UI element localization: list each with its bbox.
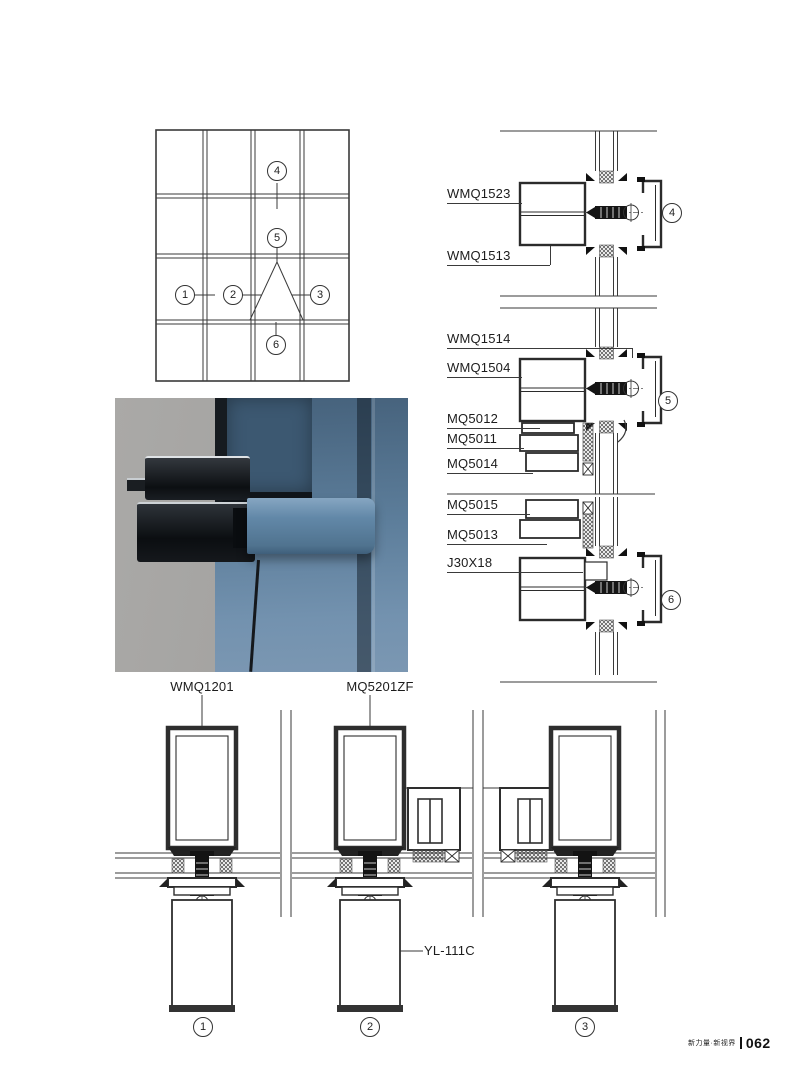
callout-elevation-2: 2 xyxy=(223,285,243,305)
label-mq5014: MQ5014 xyxy=(447,457,498,471)
leader-line xyxy=(447,544,547,545)
leader-line xyxy=(632,348,633,358)
profile-photo xyxy=(115,398,408,672)
callout-section-5: 5 xyxy=(658,391,678,411)
label-yl111c: YL-111C xyxy=(424,944,475,958)
label-wmq1514: WMQ1514 xyxy=(447,332,511,346)
label-mq5015: MQ5015 xyxy=(447,498,498,512)
leader-line xyxy=(447,203,522,204)
elevation-diagram xyxy=(140,120,360,390)
leader-line xyxy=(447,348,632,349)
footer-divider xyxy=(740,1037,742,1049)
catalog-page: WMQ1523 WMQ1513 WMQ1514 WMQ1504 MQ5012 M… xyxy=(0,0,800,1085)
leader-line xyxy=(447,428,540,429)
callout-elevation-6: 6 xyxy=(266,335,286,355)
label-mq5201zf: MQ5201ZF xyxy=(342,680,418,694)
callout-plan-2: 2 xyxy=(360,1017,380,1037)
label-mq5011: MQ5011 xyxy=(447,432,497,446)
leader-line xyxy=(447,572,583,573)
label-mq5013: MQ5013 xyxy=(447,528,498,542)
callout-elevation-3: 3 xyxy=(310,285,330,305)
label-wmq1201: WMQ1201 xyxy=(169,680,235,694)
label-mq5012: MQ5012 xyxy=(447,412,498,426)
leader-line xyxy=(447,473,533,474)
leader-line xyxy=(447,377,522,378)
callout-plan-3: 3 xyxy=(575,1017,595,1037)
footer-tagline: 新力量·新视界 xyxy=(688,1038,736,1048)
callout-elevation-5: 5 xyxy=(267,228,287,248)
callout-section-4: 4 xyxy=(662,203,682,223)
plan-details-drawing xyxy=(110,695,670,1045)
leader-line xyxy=(447,448,524,449)
leader-line xyxy=(550,246,551,265)
callout-section-6: 6 xyxy=(661,590,681,610)
label-wmq1523: WMQ1523 xyxy=(447,187,511,201)
transom-cap xyxy=(247,498,375,554)
profile-extrusion-top xyxy=(145,456,250,500)
aluminum-profile-assembly xyxy=(127,456,377,574)
footer: 新力量·新视界 062 xyxy=(688,1035,771,1051)
callout-elevation-4: 4 xyxy=(267,161,287,181)
label-wmq1504: WMQ1504 xyxy=(447,361,511,375)
leader-line xyxy=(447,265,550,266)
leader-line xyxy=(447,514,530,515)
label-j30x18: J30X18 xyxy=(447,556,492,570)
callout-plan-1: 1 xyxy=(193,1017,213,1037)
page-number: 062 xyxy=(746,1035,771,1051)
label-wmq1513: WMQ1513 xyxy=(447,249,511,263)
callout-elevation-1: 1 xyxy=(175,285,195,305)
